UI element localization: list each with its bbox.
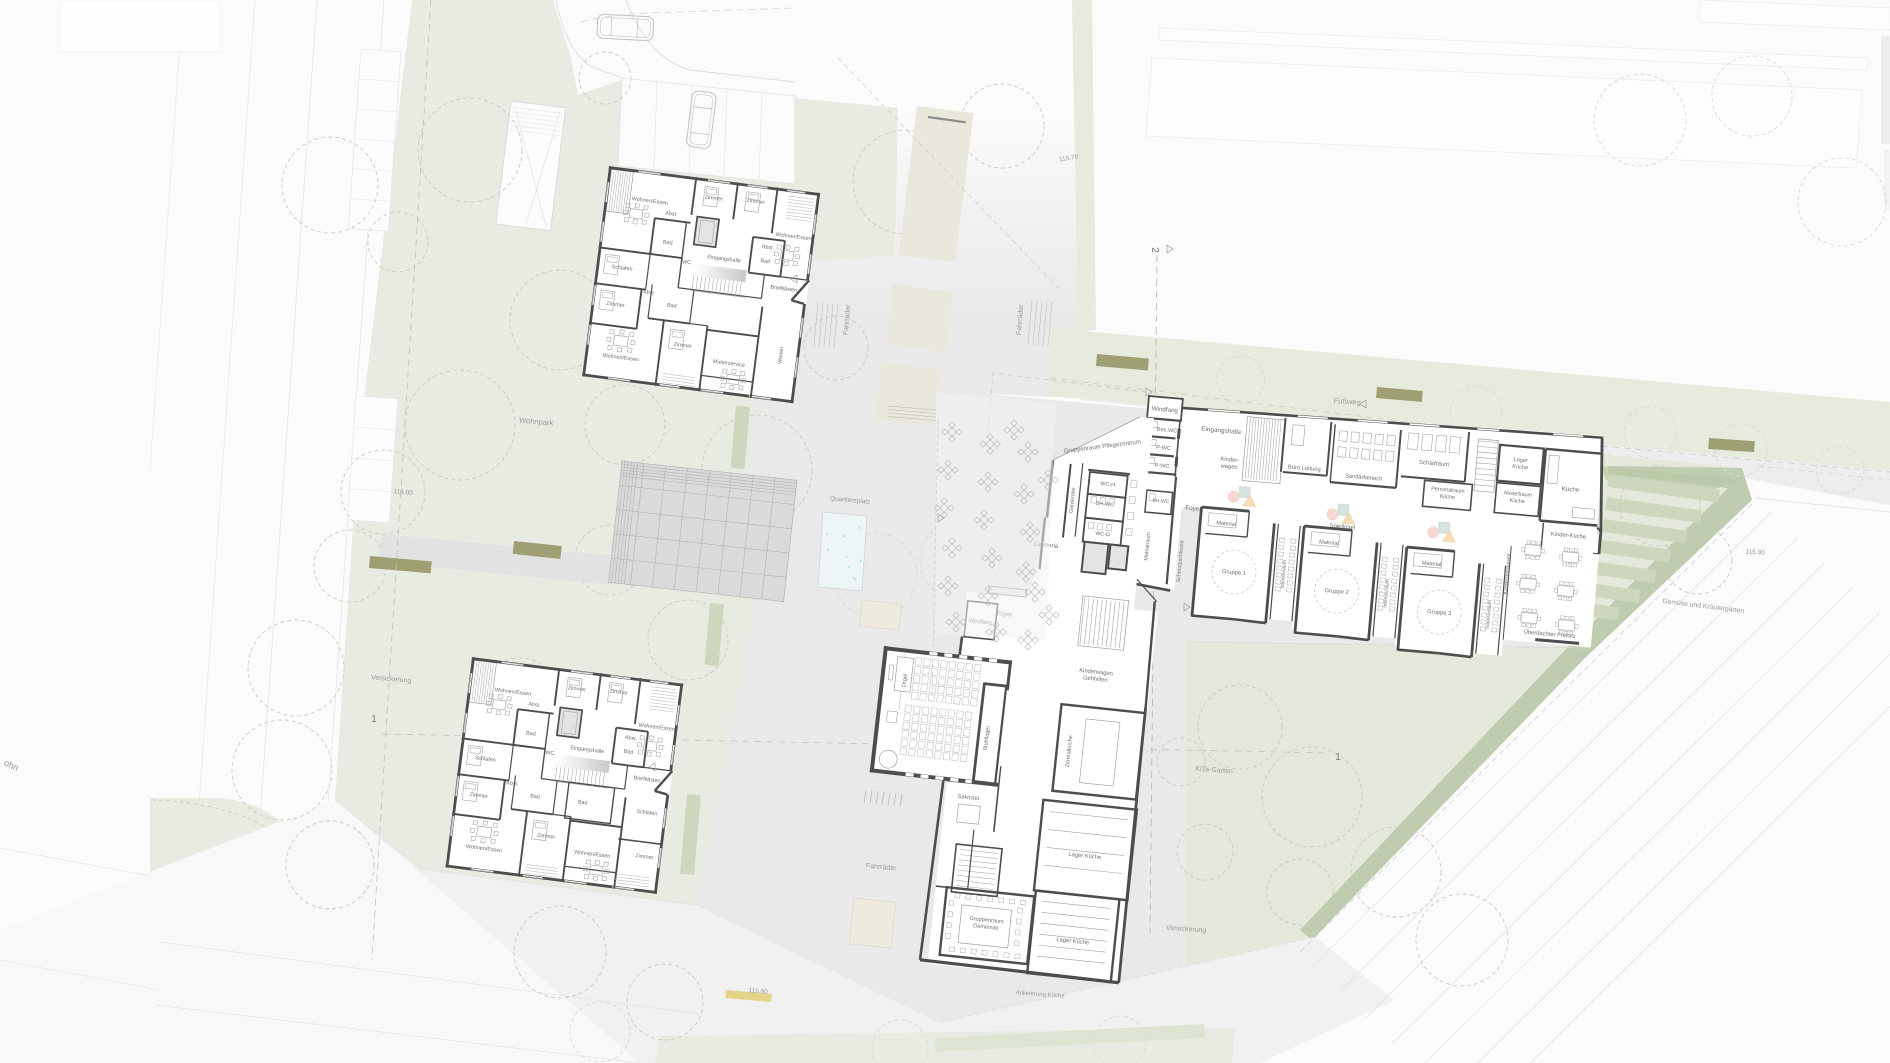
svg-text:1: 1 bbox=[371, 714, 377, 725]
svg-text:115.80: 115.80 bbox=[1745, 548, 1765, 556]
svg-text:Bad: Bad bbox=[667, 303, 677, 310]
svg-text:Bad: Bad bbox=[530, 793, 540, 800]
svg-text:Bad: Bad bbox=[760, 258, 770, 265]
svg-text:Bad: Bad bbox=[623, 749, 633, 756]
svg-text:1: 1 bbox=[1335, 752, 1341, 763]
svg-text:Bad: Bad bbox=[526, 730, 536, 737]
svg-text:2: 2 bbox=[1149, 247, 1160, 253]
svg-text:Bad: Bad bbox=[663, 239, 673, 246]
svg-text:Lager: Lager bbox=[1513, 457, 1528, 464]
svg-text:Bad: Bad bbox=[577, 799, 587, 806]
